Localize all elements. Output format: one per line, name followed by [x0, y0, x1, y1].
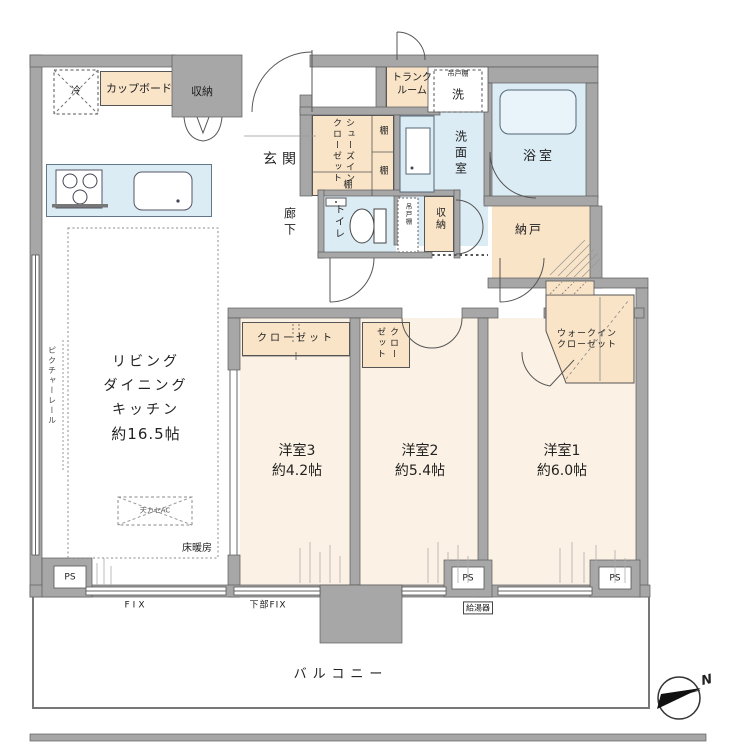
wic-hatch-box — [546, 281, 594, 295]
bedroom1-label: 洋室1 約6.0帖 — [537, 441, 587, 481]
ps-left-label: PS — [64, 572, 75, 583]
picture-rail-label: ピクチャーレール — [47, 346, 58, 466]
bedroom2-doors — [402, 318, 462, 348]
sink — [134, 172, 192, 210]
closet2-label: クローゼット — [373, 327, 399, 365]
floor-heating-label: 床暖房 — [182, 543, 212, 556]
trunk-room-label: トランクルーム — [389, 73, 435, 98]
ldk-label: リビング ダイニング キッチン 約16.5帖 — [104, 350, 189, 446]
kitchen-storage-label: 収納 — [191, 85, 213, 99]
balcony-label: バルコニー — [294, 667, 389, 683]
wic-label: ウォークイン クローゼット — [557, 329, 617, 352]
wic-line2: クローゼット — [557, 340, 617, 351]
bedroom3-label: 洋室3 約4.2帖 — [272, 441, 322, 481]
closet3-label: クローゼット — [257, 333, 335, 346]
toilet-label: トイレ — [331, 204, 346, 252]
genkan-label: 玄関 — [263, 151, 301, 169]
water-heater-label: 給湯器 — [463, 601, 493, 614]
sic-shelf2-label: 棚 — [379, 166, 388, 177]
sic-shelf-bottom-label: 棚 — [343, 180, 352, 191]
bedroom2-size: 約5.4帖 — [395, 461, 445, 481]
compass-icon — [657, 677, 701, 719]
fix-label: FIX — [125, 600, 148, 611]
vanity — [400, 116, 434, 192]
lower-fix-label: 下部FIX — [250, 600, 287, 611]
shoes-closet-label: シューズインクローゼット — [329, 118, 355, 190]
bedroom2-name: 洋室2 — [395, 441, 445, 461]
wic-line1: ウォークイン — [557, 329, 617, 340]
fridge-label: 冷 — [71, 86, 81, 99]
kitchen-storage-doors — [184, 117, 222, 141]
ldk-line2: ダイニング — [104, 374, 189, 398]
bedroom2-label: 洋室2 約5.4帖 — [395, 441, 445, 481]
ldk-line1: リビング — [104, 350, 189, 374]
hall-storage-label: 収納 — [432, 207, 447, 243]
ldk-size: 約16.5帖 — [104, 422, 189, 446]
bedroom3-name: 洋室3 — [272, 441, 322, 461]
washroom-label: 洗面室 — [453, 130, 470, 196]
bathtub — [500, 90, 576, 134]
bedroom1-size: 約6.0帖 — [537, 461, 587, 481]
washer-shelf-label: 吊戸棚 — [448, 70, 469, 79]
sic-shelf1-label: 棚 — [379, 126, 388, 137]
toilet-shelf-label: 吊戸棚 — [403, 203, 413, 253]
cupboard-label: カップボード — [106, 82, 172, 96]
washer-label: 洗 — [452, 88, 464, 103]
corridor-label: 廊下 — [282, 207, 299, 249]
bedroom1-name: 洋室1 — [537, 441, 587, 461]
ps-mid-label: PS — [462, 573, 473, 584]
nando-label: 納戸 — [515, 223, 543, 238]
floorplan: 冷 カップボード 収納 トランクルーム 吊戸棚 洗 玄関 シューズインクローゼッ… — [0, 0, 735, 750]
toilet-door — [330, 258, 374, 302]
ldk-line3: キッチン — [104, 398, 189, 422]
bathroom-label: 浴室 — [523, 149, 555, 165]
ceiling-ac-label: 天カセAC — [140, 507, 171, 516]
ps-right-label: PS — [609, 573, 620, 584]
bedroom3-size: 約4.2帖 — [272, 461, 322, 481]
